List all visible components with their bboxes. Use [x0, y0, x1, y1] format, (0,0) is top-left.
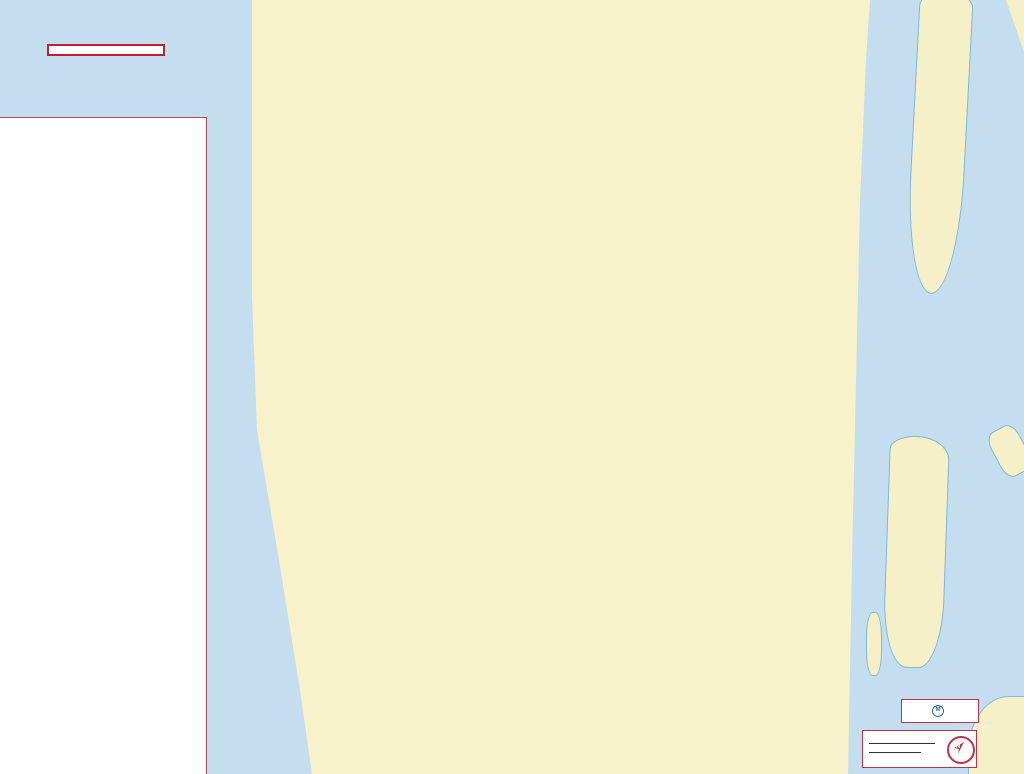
scale-line-mi — [869, 743, 935, 744]
inset-manhattan-shape — [882, 435, 950, 669]
subway-stop-legend: M — [901, 699, 979, 723]
scale-line-km — [869, 752, 921, 753]
scale-bar: N — [862, 730, 977, 768]
subway-m-icon: M — [932, 705, 944, 717]
map-title — [47, 44, 165, 56]
midtown-attractions-map: M N — [0, 0, 1024, 774]
inset-jersey-shape — [866, 612, 882, 676]
attractions-panel — [0, 117, 207, 774]
compass-north-icon: N — [947, 736, 975, 764]
compass-n-text: N — [956, 744, 960, 750]
